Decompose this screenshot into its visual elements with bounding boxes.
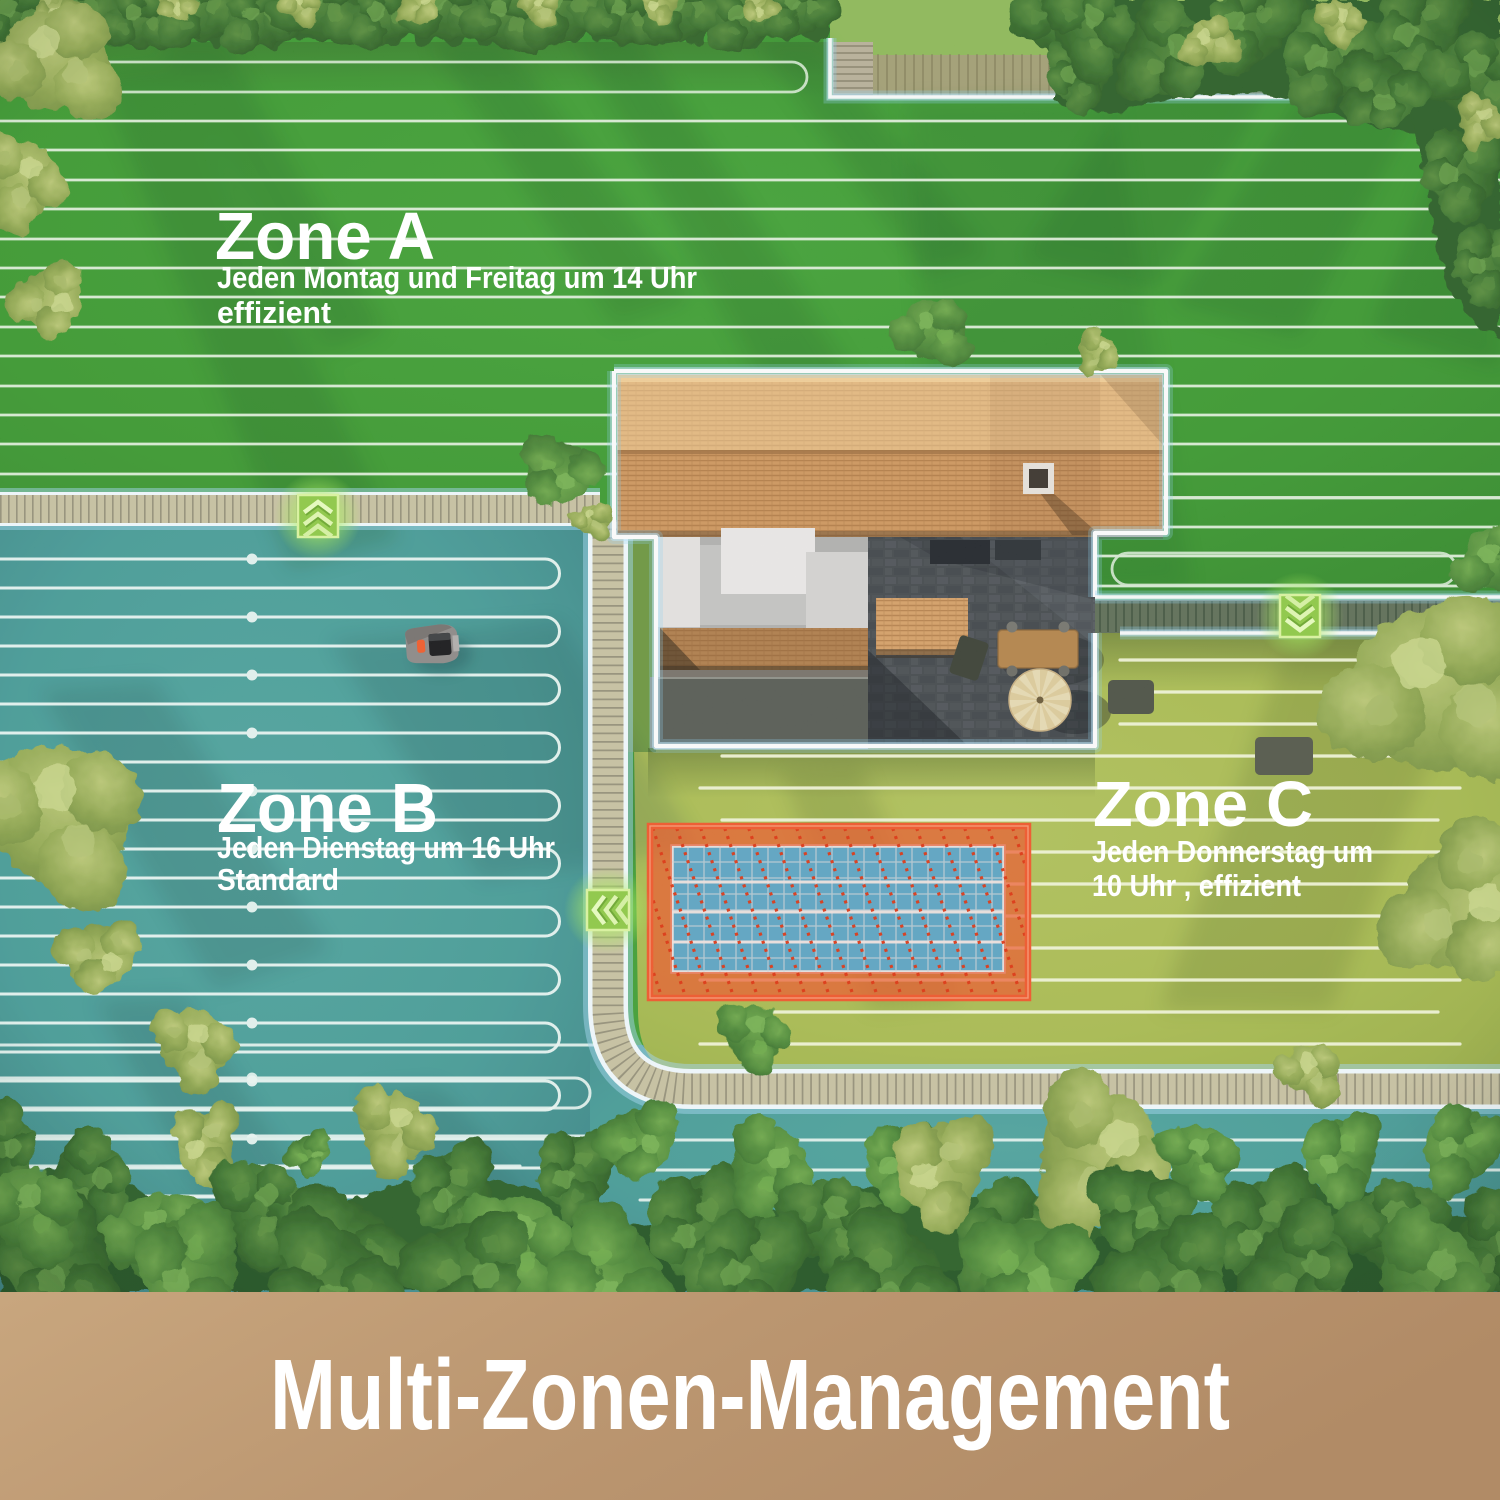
- svg-text:Zone C: Zone C: [1093, 768, 1313, 840]
- svg-text:Jeden Montag und Freitag um 14: Jeden Montag und Freitag um 14 Uhr: [217, 261, 697, 295]
- svg-text:Multi-Zonen-Management: Multi-Zonen-Management: [270, 1339, 1230, 1451]
- svg-text:Jeden Donnerstag um: Jeden Donnerstag um: [1092, 835, 1373, 869]
- svg-text:10 Uhr , effizient: 10 Uhr , effizient: [1092, 869, 1301, 903]
- svg-text:Standard: Standard: [217, 863, 339, 897]
- svg-text:effizient: effizient: [217, 296, 331, 330]
- svg-text:Jeden Dienstag um 16 Uhr: Jeden Dienstag um 16 Uhr: [217, 831, 555, 865]
